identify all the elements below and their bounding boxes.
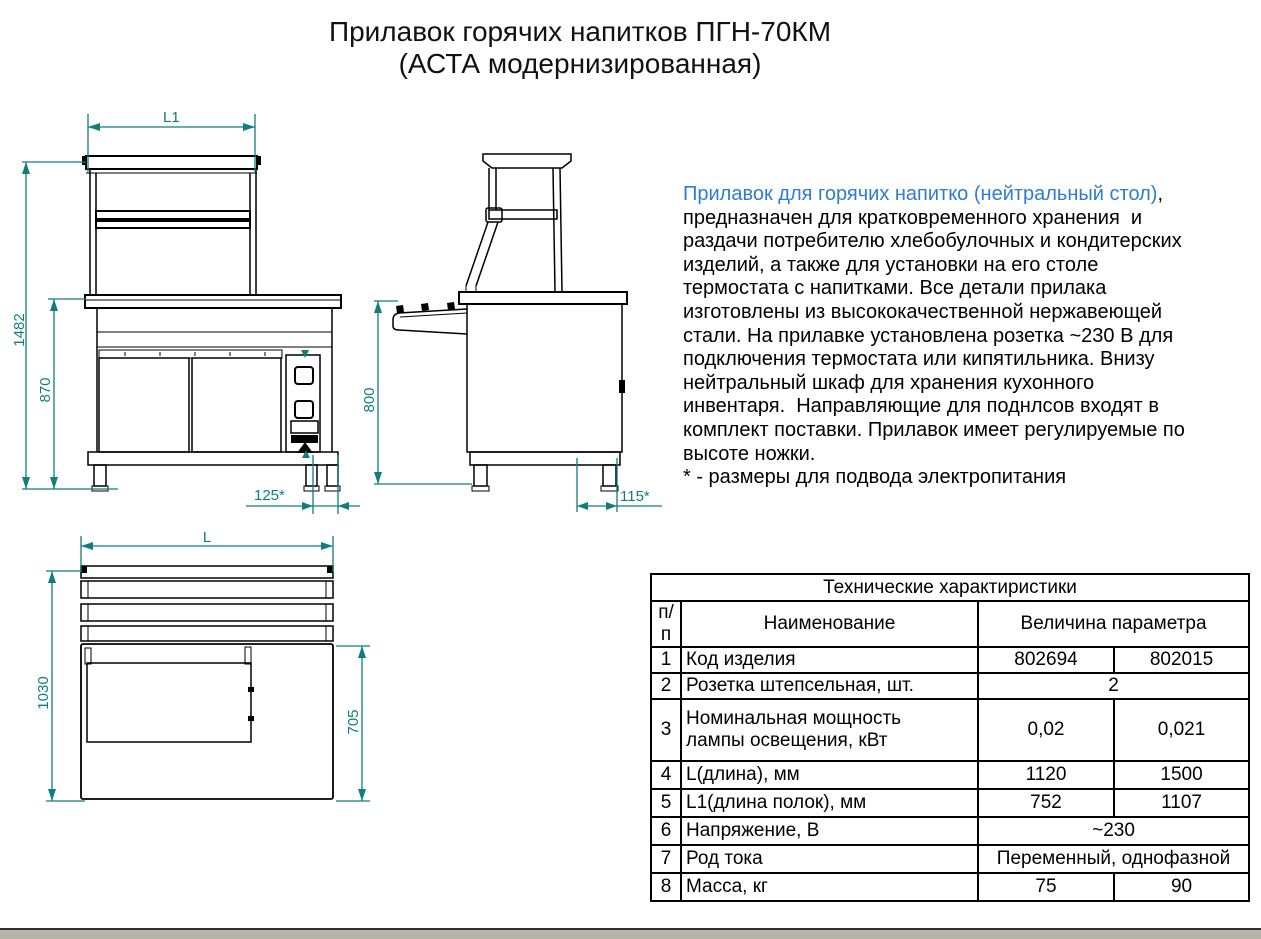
row-value-span: ~230 — [978, 817, 1249, 845]
row-value-span: 2 — [978, 673, 1249, 699]
row-name: Розетка штепсельная, шт. — [681, 673, 978, 699]
dim-label-l: L — [203, 529, 211, 546]
dimension-705: 705 — [336, 646, 370, 801]
row-value-1: 75 — [978, 873, 1114, 901]
row-num: 5 — [651, 789, 681, 817]
technical-drawings: L1 1482 870 — [0, 0, 690, 840]
dimension-l1: L1 — [88, 109, 255, 172]
row-num: 1 — [651, 647, 681, 673]
table-row: 7 Род тока Переменный, однофазной — [651, 845, 1249, 873]
row-num: 2 — [651, 673, 681, 699]
page: Прилавок горячих напитков ПГН-70КМ (АСТА… — [0, 0, 1261, 939]
row-name: L1(длина полок), мм — [681, 789, 978, 817]
dim-label-115: 115* — [620, 488, 650, 505]
table-row: 5 L1(длина полок), мм 752 1107 — [651, 789, 1249, 817]
dim-label-800: 800 — [361, 387, 378, 412]
dimension-125: 125* — [246, 350, 360, 514]
row-value-2: 802015 — [1114, 647, 1249, 673]
row-num: 3 — [651, 699, 681, 761]
table-title: Технические характиристики — [651, 574, 1249, 601]
front-right-door — [192, 358, 281, 452]
table-header-row: п/п Наименование Величина параметра — [651, 601, 1249, 647]
table-row: 2 Розетка штепсельная, шт. 2 — [651, 673, 1249, 699]
row-name: Код изделия — [681, 647, 978, 673]
dim-label-1030: 1030 — [35, 676, 52, 709]
side-view-drawing: 800 115* — [361, 154, 662, 512]
row-value-2: 0,021 — [1114, 699, 1249, 761]
row-value-1: 0,02 — [978, 699, 1114, 761]
col-header-num: п/п — [651, 601, 681, 647]
dim-label-1482: 1482 — [11, 313, 28, 346]
tray-rail — [393, 302, 467, 334]
table-row: 1 Код изделия 802694 802015 — [651, 647, 1249, 673]
table-row: 3 Номинальная мощность лампы освещения, … — [651, 699, 1249, 761]
row-value-2: 1500 — [1114, 761, 1249, 789]
row-value-1: 802694 — [978, 647, 1114, 673]
row-value-span: Переменный, однофазной — [978, 845, 1249, 873]
socket-outlet — [291, 435, 318, 443]
dimension-800: 800 — [361, 301, 472, 484]
dimension-115: 115* — [577, 458, 662, 512]
row-name: Род тока — [681, 845, 978, 873]
plan-view-drawing: L 1030 705 — [35, 529, 370, 801]
bottom-window-edge — [0, 928, 1261, 939]
product-description: Прилавок для горячих напитко (нейтральны… — [683, 183, 1261, 490]
row-num: 6 — [651, 817, 681, 845]
row-name: Напряжение, В — [681, 817, 978, 845]
row-name: Номинальная мощность лампы освещения, кВ… — [681, 699, 978, 761]
description-lead: Прилавок для горячих напитко (нейтральны… — [683, 183, 1157, 205]
description-footnote: * - размеры для подвода электропитания — [683, 466, 1261, 490]
switch-button — [295, 401, 313, 418]
front-left-door — [99, 358, 189, 452]
col-header-name: Наименование — [681, 601, 978, 647]
dimension-1030: 1030 — [35, 571, 85, 801]
row-value-2: 1107 — [1114, 789, 1249, 817]
front-view-drawing: L1 1482 870 — [11, 109, 360, 514]
switch-button — [295, 367, 313, 384]
row-value-2: 90 — [1114, 873, 1249, 901]
description-body: , предназначен для кратковременного хран… — [683, 183, 1185, 465]
rear-socket — [619, 380, 625, 393]
dimension-870: 870 — [37, 299, 86, 489]
row-num: 4 — [651, 761, 681, 789]
dim-label-705: 705 — [345, 709, 362, 734]
row-value-1: 752 — [978, 789, 1114, 817]
row-name: L(длина), мм — [681, 761, 978, 789]
socket-plate — [291, 421, 318, 433]
dim-label-125: 125* — [254, 487, 285, 504]
row-num: 7 — [651, 845, 681, 873]
table-row: 8 Масса, кг 75 90 — [651, 873, 1249, 901]
table-title-row: Технические характиристики — [651, 574, 1249, 601]
spec-table: Технические характиристики п/п Наименова… — [650, 573, 1250, 902]
dim-label-870: 870 — [37, 377, 54, 402]
row-num: 8 — [651, 873, 681, 901]
row-value-1: 1120 — [978, 761, 1114, 789]
row-name: Масса, кг — [681, 873, 978, 901]
table-row: 6 Напряжение, В ~230 — [651, 817, 1249, 845]
dim-label-l1: L1 — [163, 109, 180, 126]
col-header-value: Величина параметра — [978, 601, 1249, 647]
control-panel — [286, 355, 320, 453]
table-row: 4 L(длина), мм 1120 1500 — [651, 761, 1249, 789]
